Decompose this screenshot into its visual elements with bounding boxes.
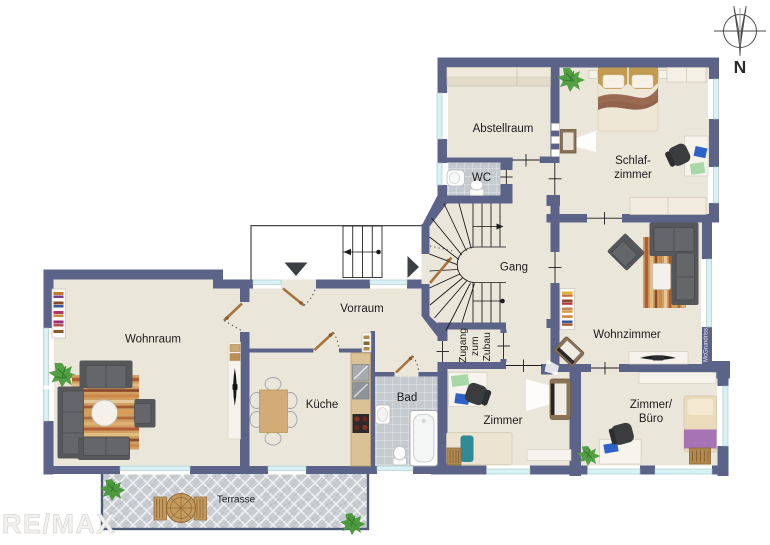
svg-text:Zubau: Zubau [482,332,493,361]
svg-text:WC: WC [472,172,491,184]
svg-text:Vorraum: Vorraum [340,303,383,315]
svg-text:Wohnraum: Wohnraum [125,334,181,346]
svg-text:Bad: Bad [397,392,417,404]
svg-text:zimmer: zimmer [614,169,652,181]
svg-text:Wohnzimmer: Wohnzimmer [593,329,661,341]
svg-text:RE/MAX: RE/MAX [2,509,116,539]
svg-text:Schlaf-: Schlaf- [615,155,651,167]
svg-text:zum: zum [470,336,481,355]
svg-text:Küche: Küche [306,399,339,411]
svg-text:Zugang: Zugang [458,328,469,363]
svg-text:Gang: Gang [500,262,528,274]
svg-text:Zimmer/: Zimmer/ [630,399,673,411]
svg-text:Büro: Büro [639,413,663,425]
svg-text:McGrundriss: McGrundriss [704,328,710,362]
svg-text:Abstellraum: Abstellraum [473,123,534,135]
svg-text:Terrasse: Terrasse [217,495,256,506]
svg-text:N: N [734,57,747,77]
svg-text:Zimmer: Zimmer [484,415,523,427]
